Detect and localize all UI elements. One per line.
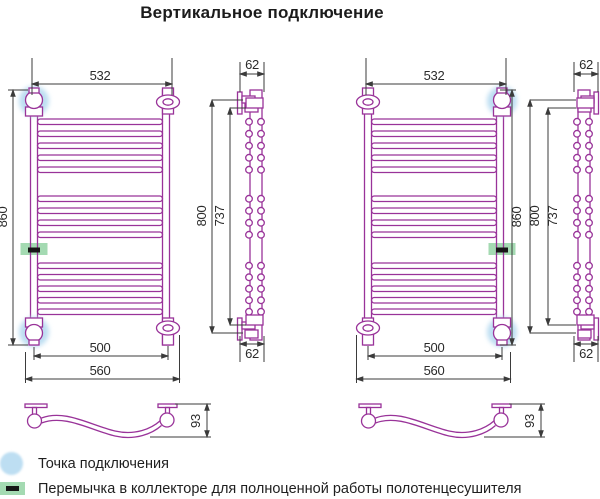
legend-connection-label: Точка подключения [38,456,169,472]
jumper-icon [0,482,25,495]
diagram-left: 532 860 500 560 62 800 737 [0,57,264,437]
diagram-canvas: 532 860 500 560 62 800 737 [0,0,600,499]
dim-height-outer: 800 [527,206,542,227]
dim-rung-depth: 93 [522,414,537,428]
wall-bracket [594,92,599,114]
dim-outer-width: 560 [424,363,445,378]
dim-outer-width: 560 [90,363,111,378]
jumper-dash-icon [6,486,19,491]
plan-view [25,404,177,437]
connection-point-icon [0,452,23,475]
dim-depth-bottom: 62 [245,346,259,361]
side-view [574,90,599,340]
dim-rung-depth: 93 [188,414,203,428]
dim-pitch-width: 500 [90,340,111,355]
front-view [19,86,180,347]
dim-overall-height: 860 [0,207,10,228]
legend-jumper-label: Перемычка в коллекторе для полноценной р… [38,481,521,497]
dim-top-width: 532 [90,68,111,83]
dim-overall-height: 860 [509,207,524,228]
front-view [357,86,518,347]
dim-depth-top: 62 [579,57,593,72]
wall-bracket [238,92,243,114]
jumper-dash [496,248,508,253]
dim-top-width: 532 [424,68,445,83]
dim-height-inner: 737 [212,206,227,227]
dim-height-inner: 737 [545,206,560,227]
dim-pitch-width: 500 [424,340,445,355]
jumper-dash [28,248,40,253]
side-view [238,90,265,340]
plan-view [359,404,511,437]
dim-height-outer: 800 [194,206,209,227]
diagram-right: 532 860 500 560 62 800 737 [357,57,599,437]
towel-rail-connection-diagram: Вертикальное подключение [0,0,600,499]
dim-depth-top: 62 [245,57,259,72]
dimensions: 532 860 500 560 62 800 737 [357,57,599,437]
dim-depth-bottom: 62 [579,346,593,361]
